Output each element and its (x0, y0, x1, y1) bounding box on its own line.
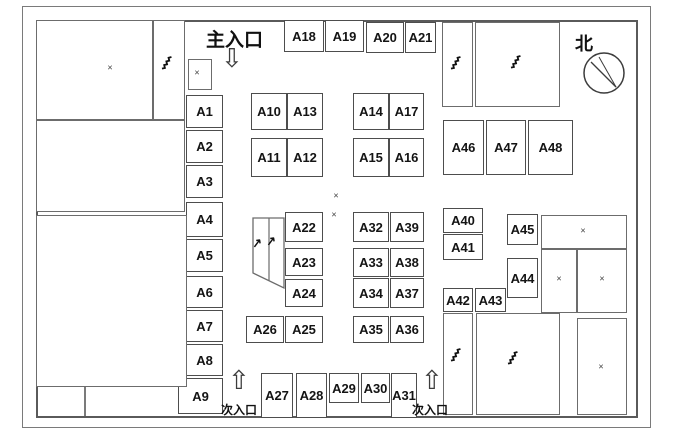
booth-A23: A23 (285, 248, 323, 276)
booth-A44: A44 (507, 258, 538, 298)
booth-A42: A42 (443, 288, 473, 312)
booth-A38: A38 (390, 248, 424, 277)
compass-icon (582, 51, 630, 99)
booth-A48: A48 (528, 120, 573, 175)
room-stair-bottom-2 (476, 313, 560, 415)
booth-A33: A33 (353, 248, 389, 277)
booth-A2: A2 (186, 130, 223, 163)
booth-A43: A43 (475, 288, 506, 312)
booth-A21: A21 (405, 22, 436, 53)
sub-entrance-right-arrow-icon: ⇧ (421, 367, 443, 393)
column-x-mark: × (107, 64, 112, 73)
booth-A6: A6 (186, 276, 223, 308)
column-x-mark: × (556, 275, 561, 284)
column-x-mark: × (333, 192, 338, 201)
booth-A47: A47 (486, 120, 526, 175)
room-top-left (36, 20, 153, 120)
booth-A30: A30 (361, 373, 390, 403)
booth-A1: A1 (186, 95, 223, 128)
main-entrance-arrow-icon: ⇩ (221, 45, 243, 71)
booth-A7: A7 (186, 310, 223, 342)
booth-A32: A32 (353, 212, 389, 242)
booth-A11: A11 (251, 138, 287, 177)
booth-A24: A24 (285, 279, 323, 307)
booth-A17: A17 (389, 93, 424, 130)
room-left-big (36, 215, 187, 387)
room-x-small (188, 59, 212, 90)
booth-A37: A37 (390, 278, 424, 308)
booth-A34: A34 (353, 278, 389, 308)
booth-A13: A13 (287, 93, 323, 130)
booth-A29: A29 (329, 373, 359, 403)
floor-plan: A1A2A3A4A5A6A7A8A9A10A13A11A12A14A17A15A… (0, 0, 693, 439)
escalator-icon: ↗ (265, 233, 277, 248)
booth-A27: A27 (261, 373, 293, 418)
column-x-mark: × (194, 69, 199, 78)
column-x-mark: × (599, 275, 604, 284)
booth-A39: A39 (390, 212, 424, 242)
booth-A22: A22 (285, 212, 323, 242)
booth-A15: A15 (353, 138, 389, 177)
booth-A5: A5 (186, 239, 223, 272)
booth-A20: A20 (366, 22, 404, 53)
booth-A26: A26 (246, 316, 284, 343)
booth-A14: A14 (353, 93, 389, 130)
booth-A40: A40 (443, 208, 483, 233)
room-left-mid (36, 120, 185, 212)
escalator-icon: ↗ (251, 235, 263, 250)
booth-A28: A28 (296, 373, 327, 418)
booth-A36: A36 (390, 316, 424, 343)
booth-A12: A12 (287, 138, 323, 177)
sub-entrance-right-label: 次入口 (412, 401, 448, 418)
booth-A45: A45 (507, 214, 538, 245)
booth-A10: A10 (251, 93, 287, 130)
sub-entrance-left-label: 次入口 (221, 401, 257, 418)
column-x-mark: × (580, 227, 585, 236)
booth-A18: A18 (284, 20, 324, 52)
column-x-mark: × (331, 211, 336, 220)
booth-A46: A46 (443, 120, 484, 175)
booth-A25: A25 (285, 316, 323, 343)
booth-A8: A8 (186, 344, 223, 376)
booth-A19: A19 (325, 20, 364, 52)
booth-A4: A4 (186, 202, 223, 237)
booth-A35: A35 (353, 316, 389, 343)
room-stair-top-left (153, 20, 185, 120)
room-stair-bottom-1 (443, 313, 473, 415)
booth-A3: A3 (186, 165, 223, 198)
booth-A41: A41 (443, 234, 483, 260)
sub-entrance-left-arrow-icon: ⇧ (228, 367, 250, 393)
booth-A16: A16 (389, 138, 424, 177)
column-x-mark: × (598, 363, 603, 372)
